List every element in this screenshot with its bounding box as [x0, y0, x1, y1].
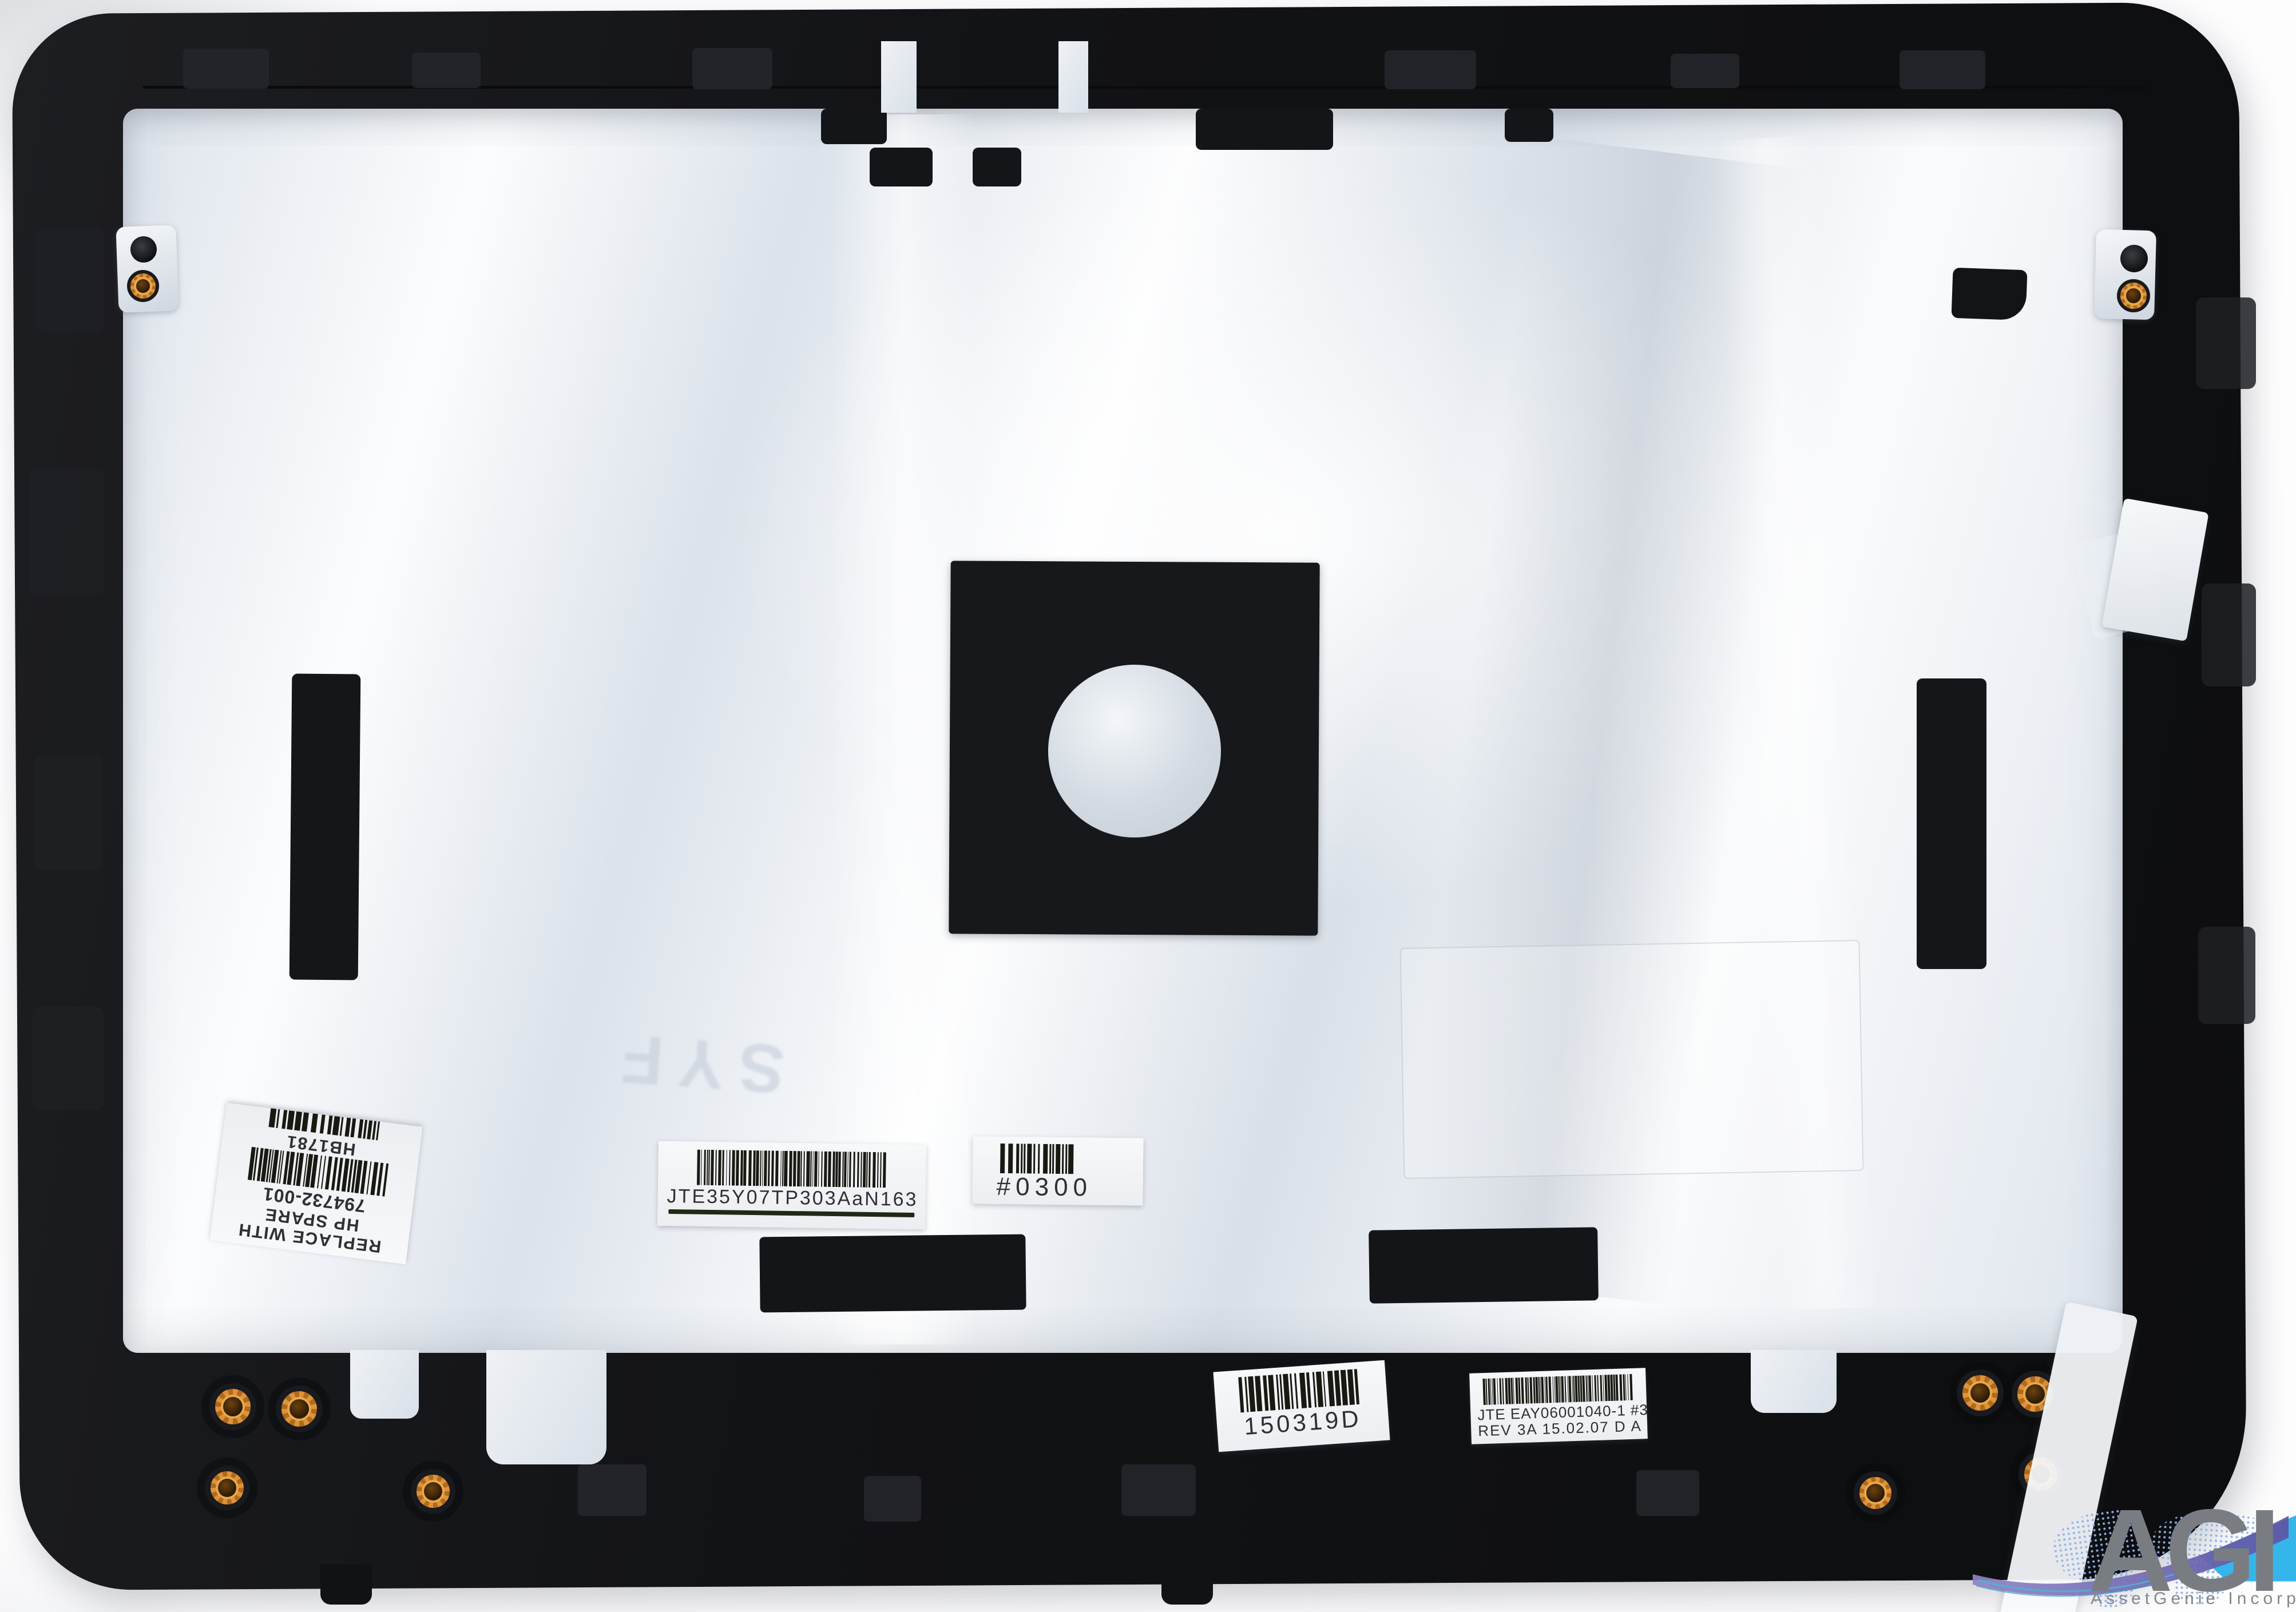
top-edge-notch — [1671, 54, 1739, 88]
bottom-edge-molding — [1121, 1464, 1196, 1516]
foil-cutout — [870, 148, 933, 186]
screw-hole — [130, 236, 157, 263]
config-label: #0300 — [972, 1136, 1143, 1205]
agi-watermark: AGI AssetGenie Incorporated — [1739, 1482, 2296, 1612]
clear-tape-outline — [1400, 940, 1864, 1179]
bottom-edge-molding — [864, 1476, 921, 1522]
foil-notch — [1751, 1350, 1837, 1413]
screw-insert — [127, 270, 159, 302]
screw-insert — [2117, 279, 2150, 312]
hp-spare-label: REPLACE WITH HP SPARE 794732-001 HB1781 — [210, 1103, 423, 1264]
foil-tab — [1058, 41, 1088, 113]
right-wall-molding — [2202, 583, 2256, 686]
screw-insert — [276, 1385, 323, 1432]
screw-hole — [2120, 245, 2148, 272]
foil-notch — [350, 1350, 419, 1419]
tape-strip-left — [290, 673, 361, 980]
foil-cutout — [973, 148, 1021, 186]
date-code-label: 150319D — [1213, 1360, 1390, 1452]
screw-insert — [209, 1383, 256, 1430]
foil-cutout-rounded — [1952, 268, 2028, 320]
foil-tab — [881, 41, 917, 113]
bottom-latch-tab — [320, 1565, 372, 1605]
top-edge-notch — [412, 53, 481, 88]
foil-cutout — [1505, 109, 1553, 142]
bottom-edge-molding — [578, 1464, 647, 1516]
foil-cutout — [1196, 109, 1333, 150]
product-photo: SYF REPLACE WITH HP SPARE 794732-001 HB1… — [0, 0, 2296, 1612]
right-wall-molding — [2198, 927, 2255, 1024]
screw-insert — [411, 1469, 455, 1514]
camera-window-cutout — [949, 561, 1319, 935]
serial-barcode — [672, 1149, 913, 1188]
bottom-edge-molding — [1636, 1470, 1699, 1516]
screw-insert — [205, 1466, 249, 1510]
left-wall-molding — [34, 755, 103, 869]
left-wall-molding — [35, 229, 104, 332]
serial-code-text: JTE35Y07TP303AaN163 — [667, 1186, 916, 1210]
top-edge-notch — [692, 48, 772, 89]
camera-window-foil-circle — [1048, 664, 1222, 838]
bottom-latch-tab — [1161, 1567, 1213, 1605]
revision-label: JTE EAY06001040-1 #3 REV 3A 15.02.07 D A — [1469, 1368, 1648, 1444]
foil-cutout — [821, 109, 887, 144]
label-underline — [668, 1209, 914, 1217]
revision-barcode — [1478, 1374, 1637, 1405]
tape-strip-bottom-right — [1369, 1227, 1599, 1304]
tape-strip-bottom-center — [759, 1234, 1026, 1313]
top-edge-notch — [1900, 50, 1985, 89]
config-barcode — [1000, 1144, 1104, 1174]
left-wall-molding — [32, 1007, 104, 1110]
left-wall-molding — [30, 469, 104, 595]
foil-embossed-text: SYF — [604, 1018, 787, 1109]
serial-barcode-label: JTE35Y07TP303AaN163 — [657, 1141, 926, 1230]
top-edge-notch — [1385, 50, 1476, 89]
screw-insert — [1957, 1369, 2004, 1416]
tape-strip-right — [1917, 678, 1986, 969]
config-code-text: #0300 — [996, 1173, 1135, 1202]
top-edge-notch — [183, 49, 269, 89]
right-wall-molding — [2196, 297, 2256, 389]
foil-notch — [486, 1350, 606, 1464]
agi-company-text: AssetGenie Incorporated — [2091, 1589, 2296, 1609]
